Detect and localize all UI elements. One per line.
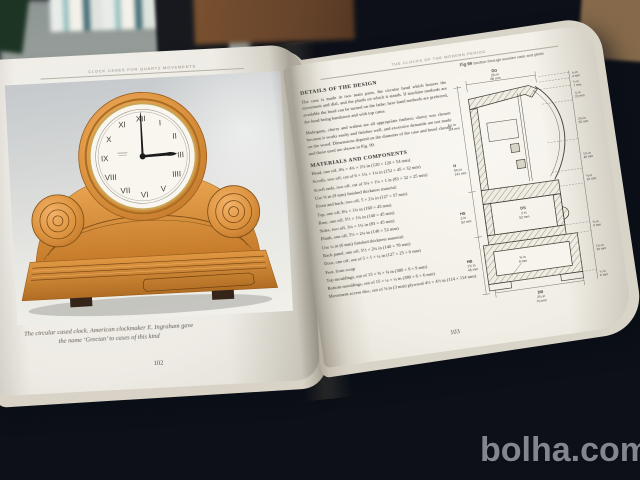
svg-text:VI: VI: [141, 190, 149, 199]
svg-text:XI: XI: [118, 120, 126, 129]
svg-text:IIII: IIII: [172, 169, 181, 178]
book-left-page: CLOCK CASES FOR QUARTZ MOVEMENTS: [0, 44, 321, 396]
svg-text:30 mm: 30 mm: [596, 246, 606, 251]
svg-text:70 mm: 70 mm: [536, 298, 547, 303]
svg-text:III: III: [177, 150, 184, 159]
photo-of-open-book: CLOCK CASES FOR QUARTZ MOVEMENTS: [0, 0, 640, 480]
cross-section-diagram: DG 2⅝ in 66 mm 4½ in 114 mm H 5⅝ in 141 …: [435, 54, 625, 314]
clock-photograph: XII I II III IIII V VI VII VIII IX X XI: [5, 71, 293, 325]
svg-text:VII: VII: [120, 186, 130, 195]
technical-figure: Fig 99 Section through wooden case and p…: [434, 44, 628, 316]
svg-text:66 mm: 66 mm: [490, 76, 501, 81]
svg-text:VIII: VIII: [104, 173, 116, 183]
svg-text:IX: IX: [101, 154, 110, 163]
svg-text:9 mm: 9 mm: [593, 222, 602, 227]
svg-text:22 mm: 22 mm: [575, 93, 585, 98]
svg-text:55 mm: 55 mm: [578, 119, 588, 124]
svg-text:4 mm: 4 mm: [572, 73, 581, 78]
svg-text:40 mm: 40 mm: [583, 154, 593, 159]
svg-text:6 mm: 6 mm: [600, 272, 609, 277]
svg-text:45 mm: 45 mm: [468, 267, 479, 272]
svg-text:141 mm: 141 mm: [454, 171, 467, 177]
svg-text:114 mm: 114 mm: [448, 126, 460, 132]
svg-text:52 mm: 52 mm: [519, 214, 530, 219]
background-wood-floor: [193, 0, 355, 45]
background-bookshelf: [49, 0, 168, 32]
left-page-number: 102: [0, 351, 319, 375]
svg-text:7 mm: 7 mm: [573, 82, 582, 87]
svg-text:10 mm: 10 mm: [586, 176, 596, 181]
clock-foot: [70, 297, 92, 307]
svg-text:II: II: [172, 132, 177, 141]
svg-text:52 mm: 52 mm: [461, 219, 472, 224]
bolha-watermark: bolha.com: [480, 431, 640, 470]
right-page-number: 103: [322, 310, 589, 354]
svg-text:I: I: [159, 118, 162, 127]
mantel-clock-illustration: XII I II III IIII V VI VII VIII IX X XI: [5, 71, 293, 325]
photo-caption: The circular cased clock. American clock…: [24, 322, 195, 349]
clock-foot: [212, 290, 234, 300]
book-right-page: THE CLOCKS OF THE MODERN PERIOD DETAILS …: [282, 24, 633, 368]
